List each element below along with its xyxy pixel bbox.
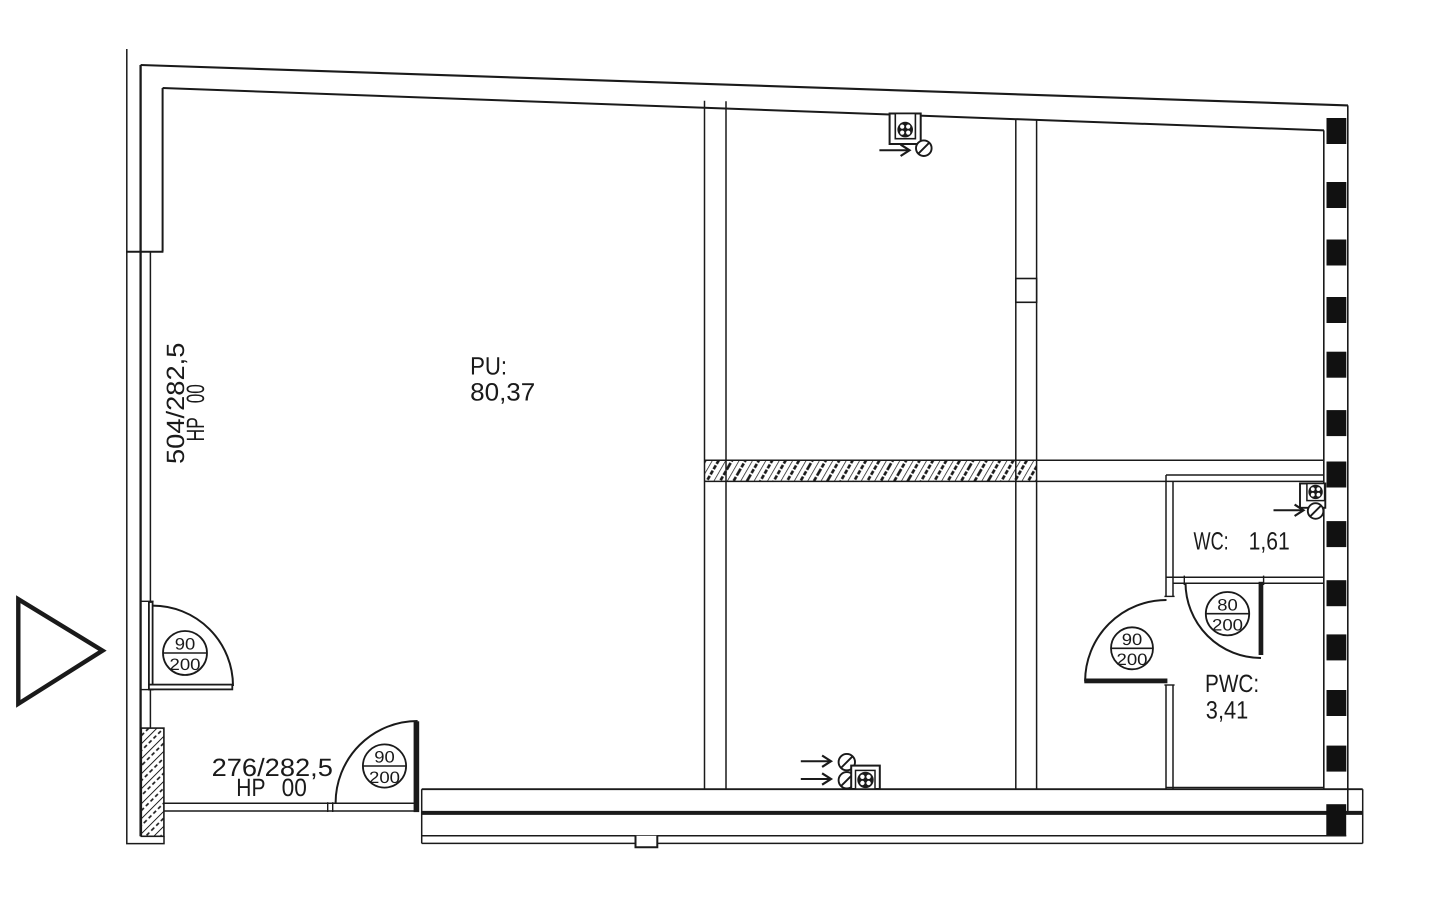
svg-text:276/282,5: 276/282,5 — [212, 754, 333, 782]
svg-text:HP: HP — [182, 417, 210, 441]
svg-text:200: 200 — [170, 656, 201, 674]
svg-text:90: 90 — [374, 749, 395, 767]
svg-text:PWC:: PWC: — [1205, 670, 1259, 698]
svg-text:200: 200 — [369, 769, 400, 787]
svg-text:PU:: PU: — [470, 353, 507, 381]
svg-text:200: 200 — [1212, 617, 1243, 635]
svg-text:HP: HP — [236, 774, 265, 802]
svg-text:90: 90 — [1122, 631, 1143, 649]
svg-text:80,37: 80,37 — [470, 378, 535, 406]
svg-text:1,61: 1,61 — [1249, 528, 1290, 556]
svg-text:3,41: 3,41 — [1206, 696, 1249, 724]
svg-text:90: 90 — [175, 636, 196, 654]
svg-text:WC:: WC: — [1194, 528, 1229, 556]
svg-text:00: 00 — [182, 384, 210, 403]
svg-text:00: 00 — [282, 774, 307, 802]
svg-text:80: 80 — [1217, 596, 1238, 614]
svg-text:200: 200 — [1117, 651, 1148, 669]
